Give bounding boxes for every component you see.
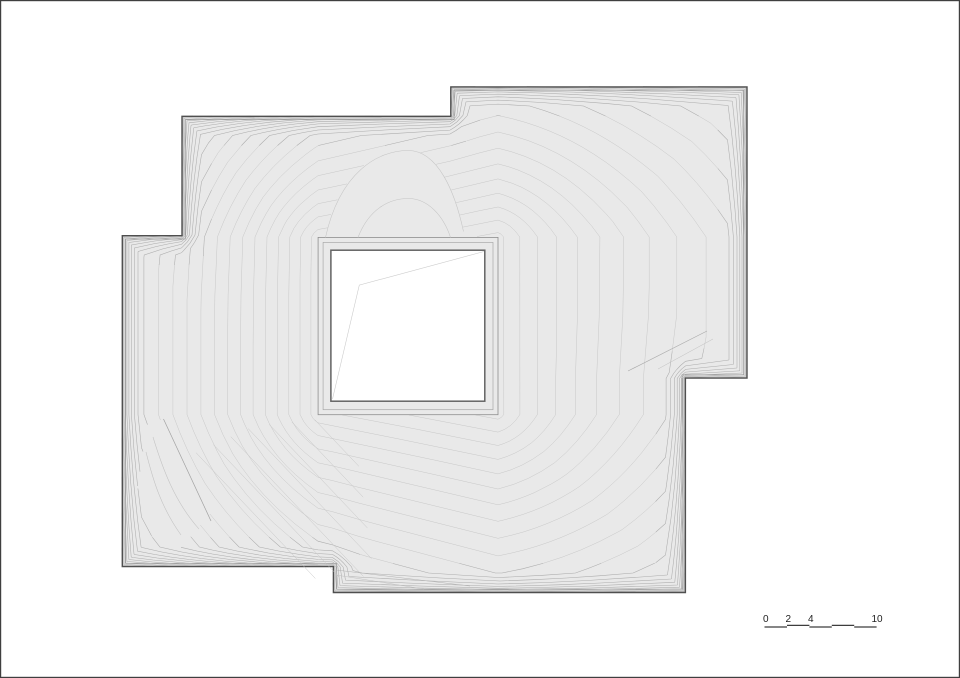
svg-text:0: 0 bbox=[763, 614, 769, 625]
svg-text:10: 10 bbox=[872, 614, 884, 625]
svg-text:4: 4 bbox=[808, 614, 814, 625]
svg-text:2: 2 bbox=[786, 614, 792, 625]
